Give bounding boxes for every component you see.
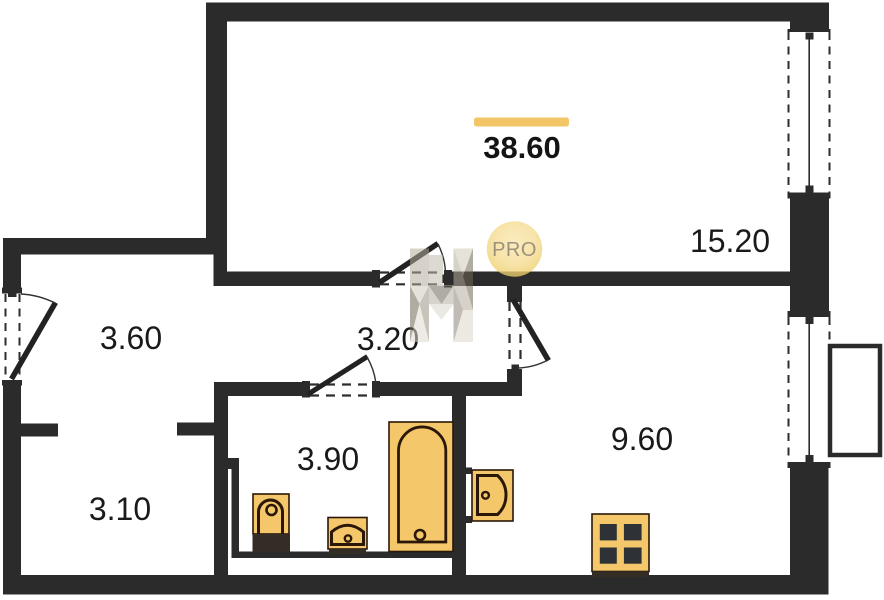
svg-text:38.60: 38.60 [483,130,561,165]
svg-text:15.20: 15.20 [690,223,770,259]
svg-text:3.90: 3.90 [297,441,359,477]
svg-text:PRO: PRO [492,239,537,261]
svg-text:3.60: 3.60 [100,320,162,356]
svg-text:3.20: 3.20 [357,321,419,357]
svg-text:9.60: 9.60 [611,421,673,457]
svg-text:3.10: 3.10 [89,491,151,527]
